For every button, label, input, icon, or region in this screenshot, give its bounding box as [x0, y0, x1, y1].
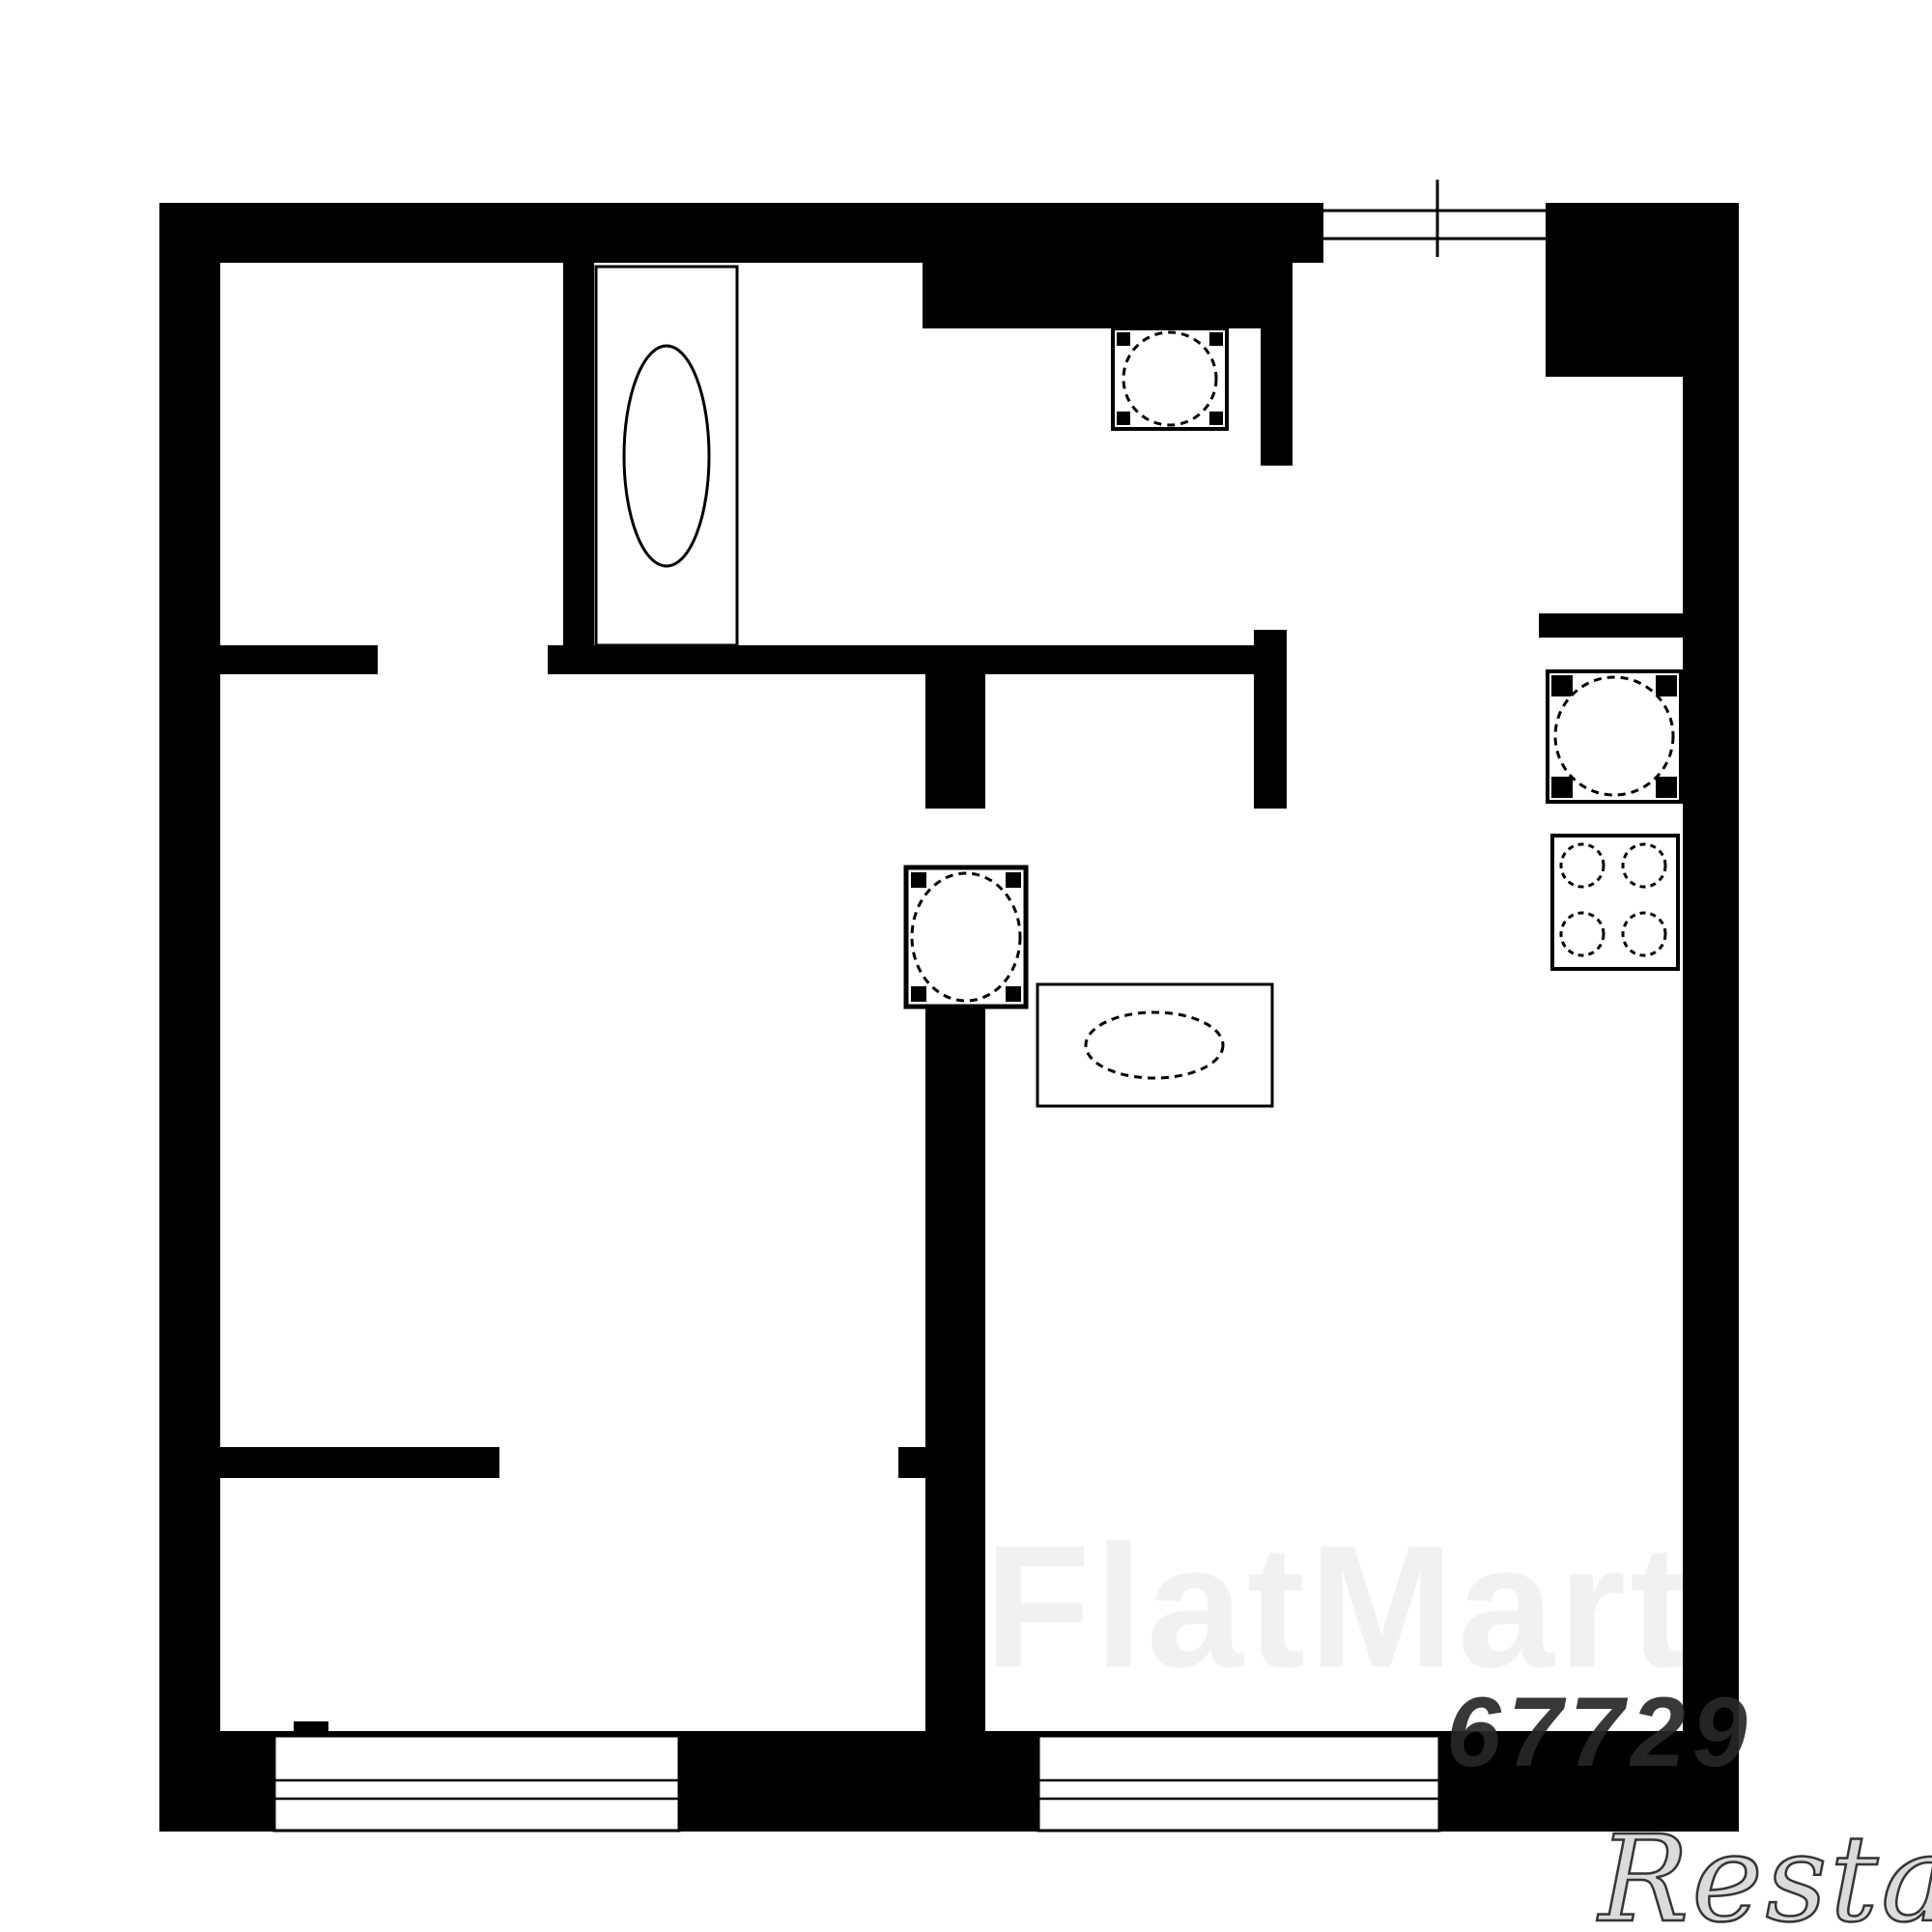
watermark-serial-number: 67729	[1446, 1677, 1754, 1787]
mid-wall-main	[548, 645, 1254, 674]
stove-burner	[1623, 844, 1665, 887]
window-a-nub	[294, 1721, 328, 1732]
watermark-restate-logo: Restate	[1597, 1810, 1932, 1932]
kitchen-counter-stub	[1539, 613, 1683, 638]
kitchen-sink-corner-wedge	[1551, 777, 1573, 798]
washbasin-corner-wedge	[1209, 332, 1223, 346]
stove-burner	[1561, 913, 1604, 955]
bathroom-door-stub	[1261, 263, 1293, 466]
floor-plan: FlatMart 67729 Restate	[0, 0, 1932, 1932]
oval-table-basin	[1086, 1012, 1223, 1078]
kitchen-sink-corner-wedge	[1656, 777, 1677, 798]
bathtub-basin	[624, 346, 709, 566]
floorplan-image: FlatMart 67729 Restate	[0, 0, 1932, 1932]
washbasin-basin	[1123, 332, 1216, 425]
wc-stem-wall	[925, 674, 985, 809]
kitchen-sink-basin	[1555, 677, 1673, 795]
hall-stub	[220, 1447, 499, 1478]
hall-nub	[898, 1447, 925, 1478]
washbasin-corner-wedge	[1209, 412, 1223, 425]
window-left	[274, 1736, 679, 1831]
kitchen-sink-corner-wedge	[1551, 675, 1573, 696]
top-wall	[159, 203, 1323, 263]
washbasin-corner-wedge	[1117, 412, 1130, 425]
bathroom-left-wall	[563, 263, 594, 645]
top-middle-wall-block	[923, 263, 1293, 328]
toilet-corner-wedge	[911, 872, 926, 888]
window-right	[1038, 1736, 1439, 1831]
mid-wall-left-stub	[220, 645, 378, 674]
wc-right-wall	[1254, 630, 1287, 809]
toilet-corner-wedge	[1006, 872, 1021, 888]
toilet-corner-wedge	[1006, 986, 1021, 1002]
stove-burner	[1561, 844, 1604, 887]
washbasin-corner-wedge	[1117, 332, 1130, 346]
kitchen-sink-corner-wedge	[1656, 675, 1677, 696]
middle-wall-lower	[925, 1007, 985, 1731]
stove-burner	[1623, 913, 1665, 955]
watermark-center: FlatMart	[984, 1510, 1691, 1704]
toilet-basin	[912, 873, 1020, 1001]
toilet-corner-wedge	[911, 986, 926, 1002]
left-wall	[159, 203, 220, 1832]
